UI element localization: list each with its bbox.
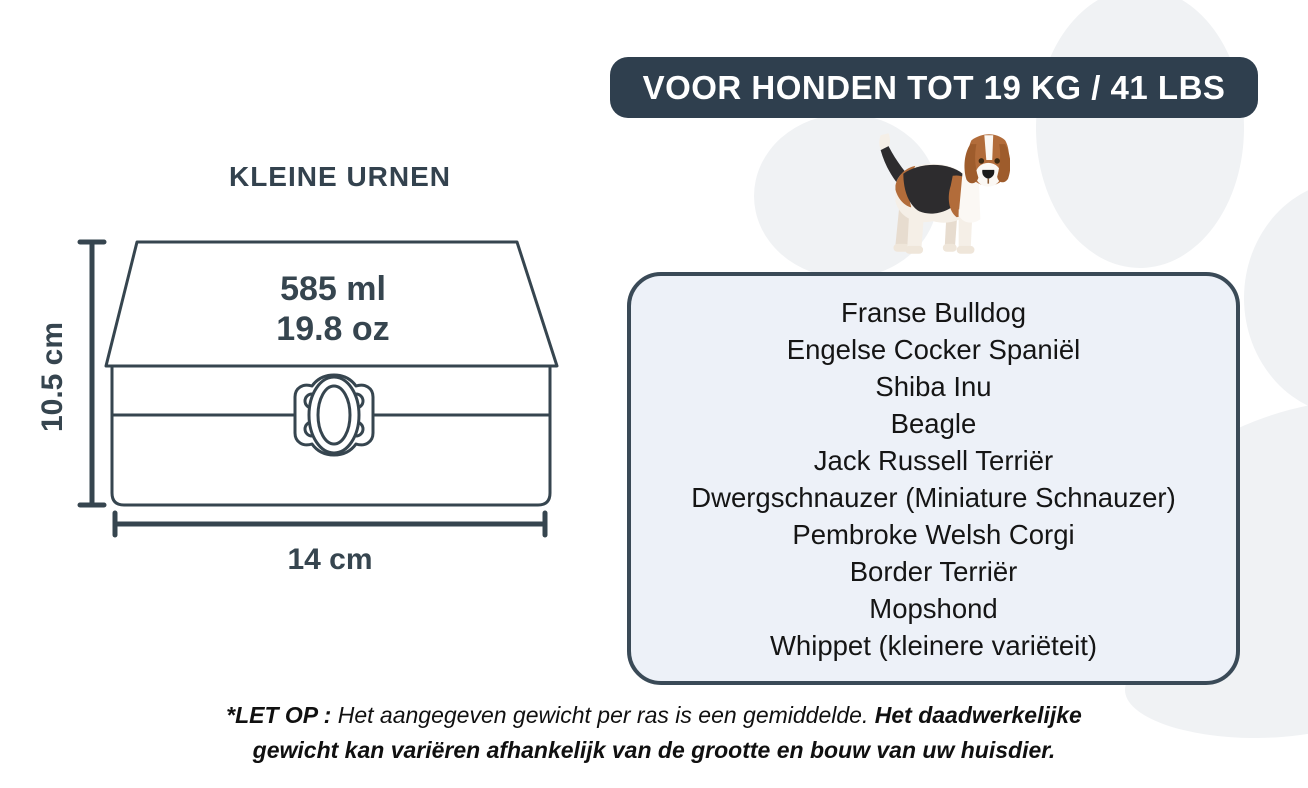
weight-banner-label: VOOR HONDEN TOT 19 KG / 41 LBS: [643, 69, 1226, 107]
breed-item: Border Terriër: [850, 553, 1018, 590]
beagle-icon: [852, 128, 1010, 262]
weight-banner: VOOR HONDEN TOT 19 KG / 41 LBS: [610, 57, 1258, 118]
breed-item: Franse Bulldog: [841, 294, 1026, 331]
urn-dimension-diagram: 585 ml 19.8 oz 10.5 cm 14 cm: [40, 228, 600, 588]
disclaimer-middle: Het aangegeven gewicht per ras is een ge…: [338, 702, 869, 728]
breed-item: Beagle: [891, 405, 977, 442]
disclaimer-note: *LET OP : Het aangegeven gewicht per ras…: [189, 698, 1119, 767]
urn-height-label: 10.5 cm: [40, 322, 69, 432]
breed-item: Pembroke Welsh Corgi: [792, 516, 1074, 553]
urn-volume-oz: 19.8 oz: [276, 310, 389, 348]
breed-list-panel: Franse BulldogEngelse Cocker SpaniëlShib…: [627, 272, 1240, 685]
breed-item: Mopshond: [869, 590, 997, 627]
breed-item: Engelse Cocker Spaniël: [787, 331, 1081, 368]
urn-volume-ml: 585 ml: [280, 270, 386, 308]
breed-item: Jack Russell Terriër: [814, 442, 1053, 479]
urn-size-title: KLEINE URNEN: [60, 161, 620, 193]
breed-item: Dwergschnauzer (Miniature Schnauzer): [691, 479, 1176, 516]
breed-item: Shiba Inu: [875, 368, 991, 405]
urn-width-label: 14 cm: [287, 543, 372, 576]
urn-clasp-icon: [295, 375, 373, 455]
infographic-canvas: VOOR HONDEN TOT 19 KG / 41 LBS: [0, 0, 1308, 788]
breed-item: Whippet (kleinere variëteit): [770, 627, 1097, 664]
disclaimer-prefix: *LET OP :: [226, 702, 331, 728]
